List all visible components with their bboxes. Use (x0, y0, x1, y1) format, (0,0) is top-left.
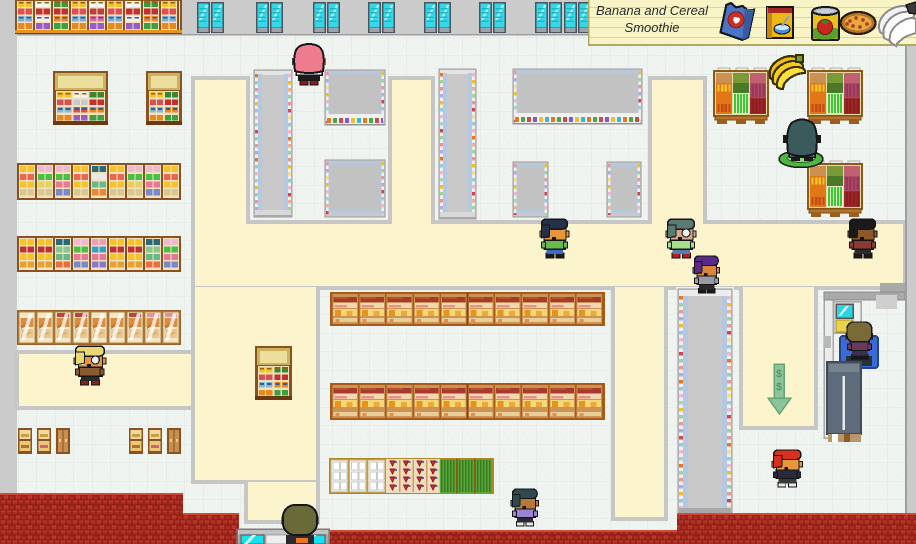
svg-text:Banana and Cereal: Banana and Cereal (596, 3, 709, 18)
svg-text:$: $ (776, 382, 782, 393)
svg-text:$: $ (776, 369, 782, 380)
svg-text:Smoothie: Smoothie (625, 20, 680, 35)
